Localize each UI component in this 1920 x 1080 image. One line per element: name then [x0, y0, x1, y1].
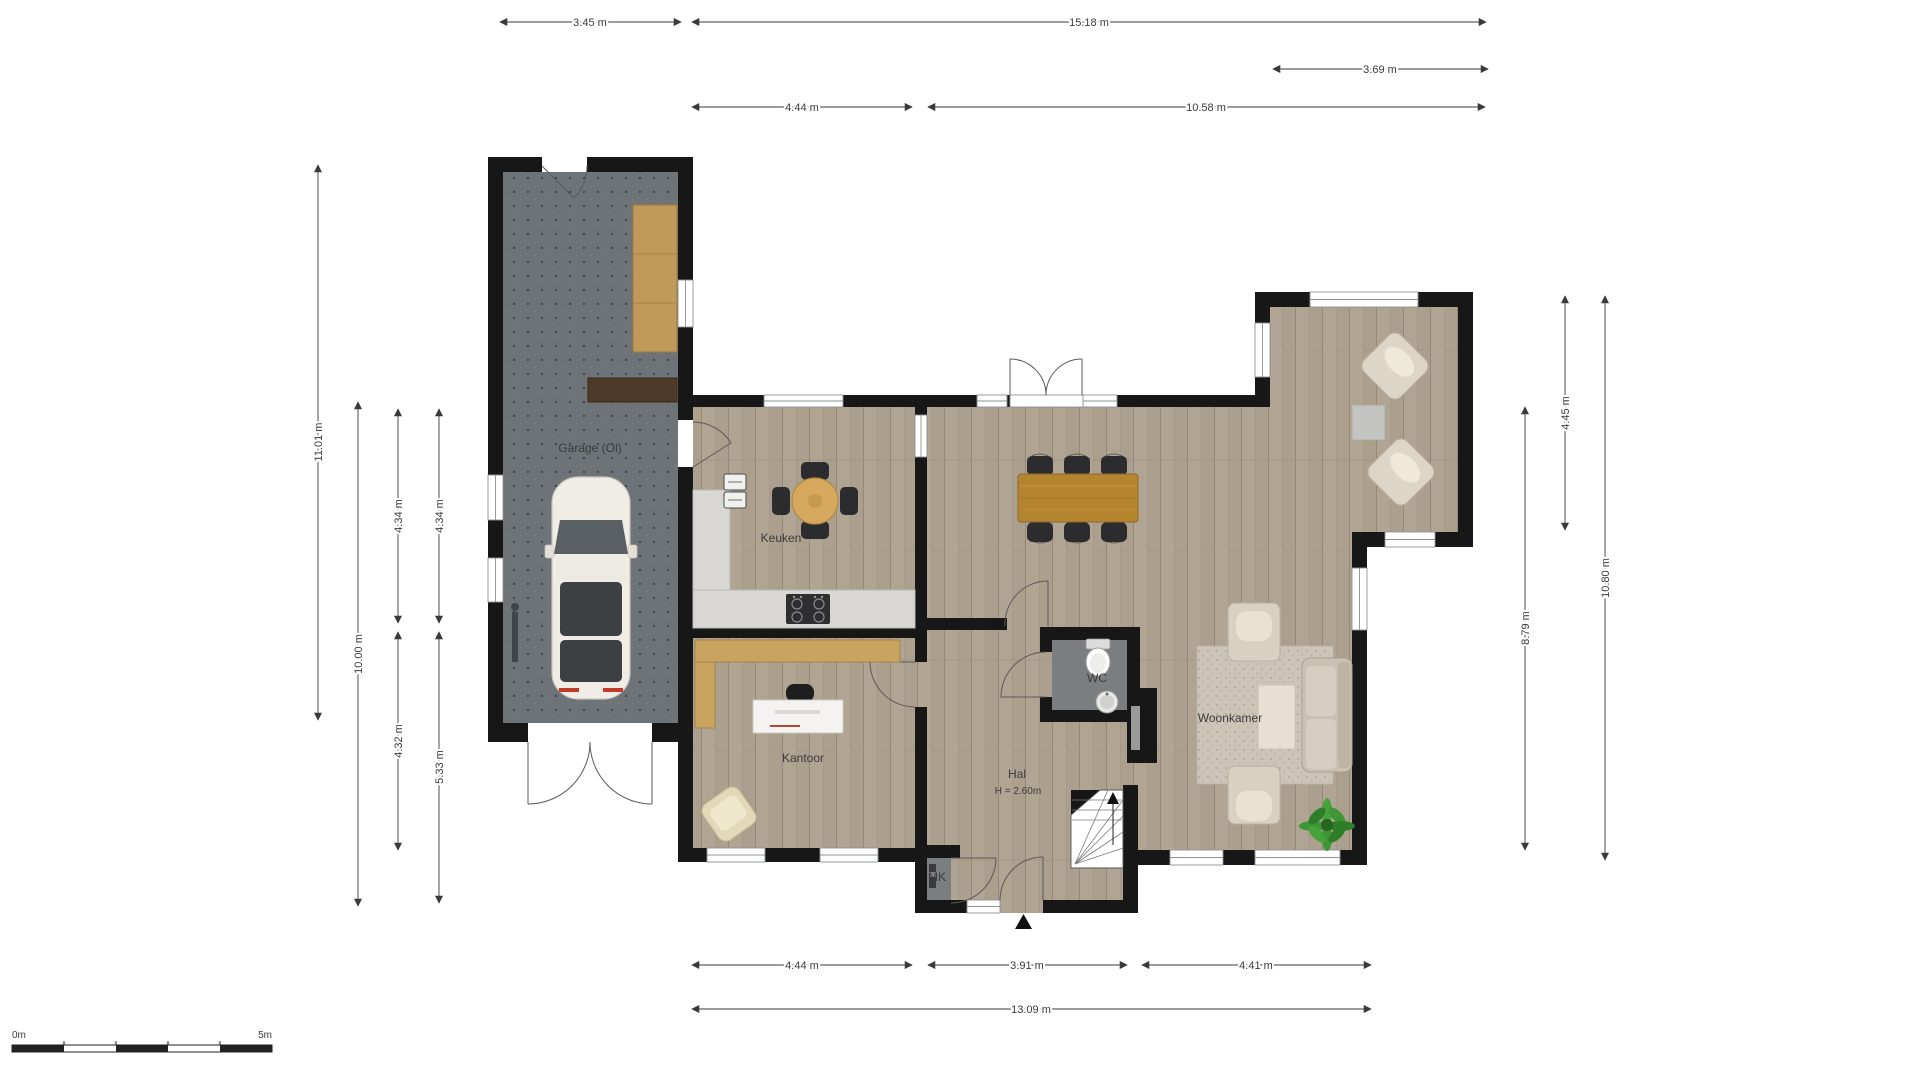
french-doors — [1010, 359, 1083, 407]
side-table — [1352, 405, 1385, 440]
chair — [1064, 456, 1090, 476]
window — [1310, 292, 1418, 307]
sink — [1096, 691, 1118, 713]
keuken-label: Keuken — [761, 531, 802, 545]
car-mirror — [628, 545, 637, 558]
sofa — [1302, 658, 1352, 772]
coffee-table — [1258, 685, 1295, 749]
scale-bar: 0m 5m — [12, 1030, 272, 1052]
chair — [1101, 456, 1127, 476]
dimension-label: 4.32 m — [393, 724, 405, 758]
garage-label: Garage (Ol) — [558, 441, 621, 455]
dimension-label: 3.91 m — [1010, 960, 1044, 972]
chair — [1101, 522, 1127, 542]
dimension-label: 5.33 m — [434, 750, 446, 784]
car-windshield — [554, 520, 628, 554]
dimension-label: 15.18 m — [1069, 17, 1109, 29]
car — [545, 477, 637, 699]
dimension-label: 10.58 m — [1186, 102, 1226, 114]
dimension-label: 4.41 m — [1239, 960, 1273, 972]
dimension-label: 4.34 m — [434, 499, 446, 533]
window — [820, 848, 878, 862]
chair — [772, 487, 790, 515]
workbench — [588, 378, 677, 402]
floorplan-page: Garage (Ol) Keuken Kantoor Hal H = 2.60m… — [0, 0, 1920, 1080]
dimension-label: 10.80 m — [1600, 558, 1612, 598]
wc-label: WC — [1087, 671, 1107, 685]
dimension-label: 3.45 m — [573, 17, 607, 29]
woonkamer-label: Woonkamer — [1198, 711, 1262, 725]
dimension-label: 4.34 m — [393, 499, 405, 533]
entrance-arrow — [1015, 914, 1032, 929]
window — [678, 280, 693, 327]
floorplan-drawing: Garage (Ol) Keuken Kantoor Hal H = 2.60m… — [0, 0, 1920, 1080]
chair — [840, 487, 858, 515]
window — [967, 900, 1000, 913]
office-cabinet — [695, 662, 715, 728]
scale-end-label: 5m — [258, 1030, 272, 1041]
window — [707, 848, 765, 862]
chair — [801, 462, 829, 480]
stove — [786, 594, 830, 624]
car-mirror — [545, 545, 554, 558]
chair — [1027, 456, 1053, 476]
pass-through-window — [915, 415, 927, 457]
armchair — [1228, 603, 1280, 661]
garage-double-door — [528, 742, 652, 804]
dimension-label: 8.79 m — [1520, 611, 1532, 645]
hal-label: Hal — [1008, 767, 1026, 781]
office-cabinet — [695, 640, 900, 662]
window — [1255, 850, 1340, 865]
car-sunroof — [560, 582, 622, 636]
window — [1083, 395, 1117, 407]
dining-table — [1018, 454, 1138, 543]
mk-label: MK — [928, 870, 946, 884]
ladder — [512, 612, 518, 662]
dimension-label: 4.44 m — [785, 102, 819, 114]
armchair — [1228, 766, 1280, 824]
dimension-label: 4.45 m — [1560, 396, 1572, 430]
fireplace-insert — [1131, 706, 1140, 750]
car-rear-window — [560, 640, 622, 682]
dimension-label: 10.00 m — [353, 634, 365, 674]
window — [488, 558, 503, 602]
window — [977, 395, 1007, 407]
window — [488, 475, 503, 520]
car-taillight — [603, 688, 623, 692]
window — [1255, 323, 1270, 377]
chair — [1064, 522, 1090, 542]
kantoor-label: Kantoor — [782, 751, 824, 765]
window — [764, 395, 843, 407]
window — [1170, 850, 1223, 865]
chair — [1027, 522, 1053, 542]
desk — [753, 700, 843, 733]
dimension-label: 4.44 m — [785, 960, 819, 972]
scale-start-label: 0m — [12, 1030, 26, 1041]
car-taillight — [559, 688, 579, 692]
office-chair — [786, 684, 814, 702]
window — [1385, 532, 1435, 547]
hal-height-label: H = 2.60m — [995, 786, 1041, 797]
dimension-label: 3.69 m — [1363, 64, 1397, 76]
dimension-label: 11.01 m — [313, 423, 325, 462]
dimension-label: 13.09 m — [1011, 1004, 1051, 1016]
window — [1352, 568, 1367, 630]
garage-cabinet — [633, 205, 677, 352]
